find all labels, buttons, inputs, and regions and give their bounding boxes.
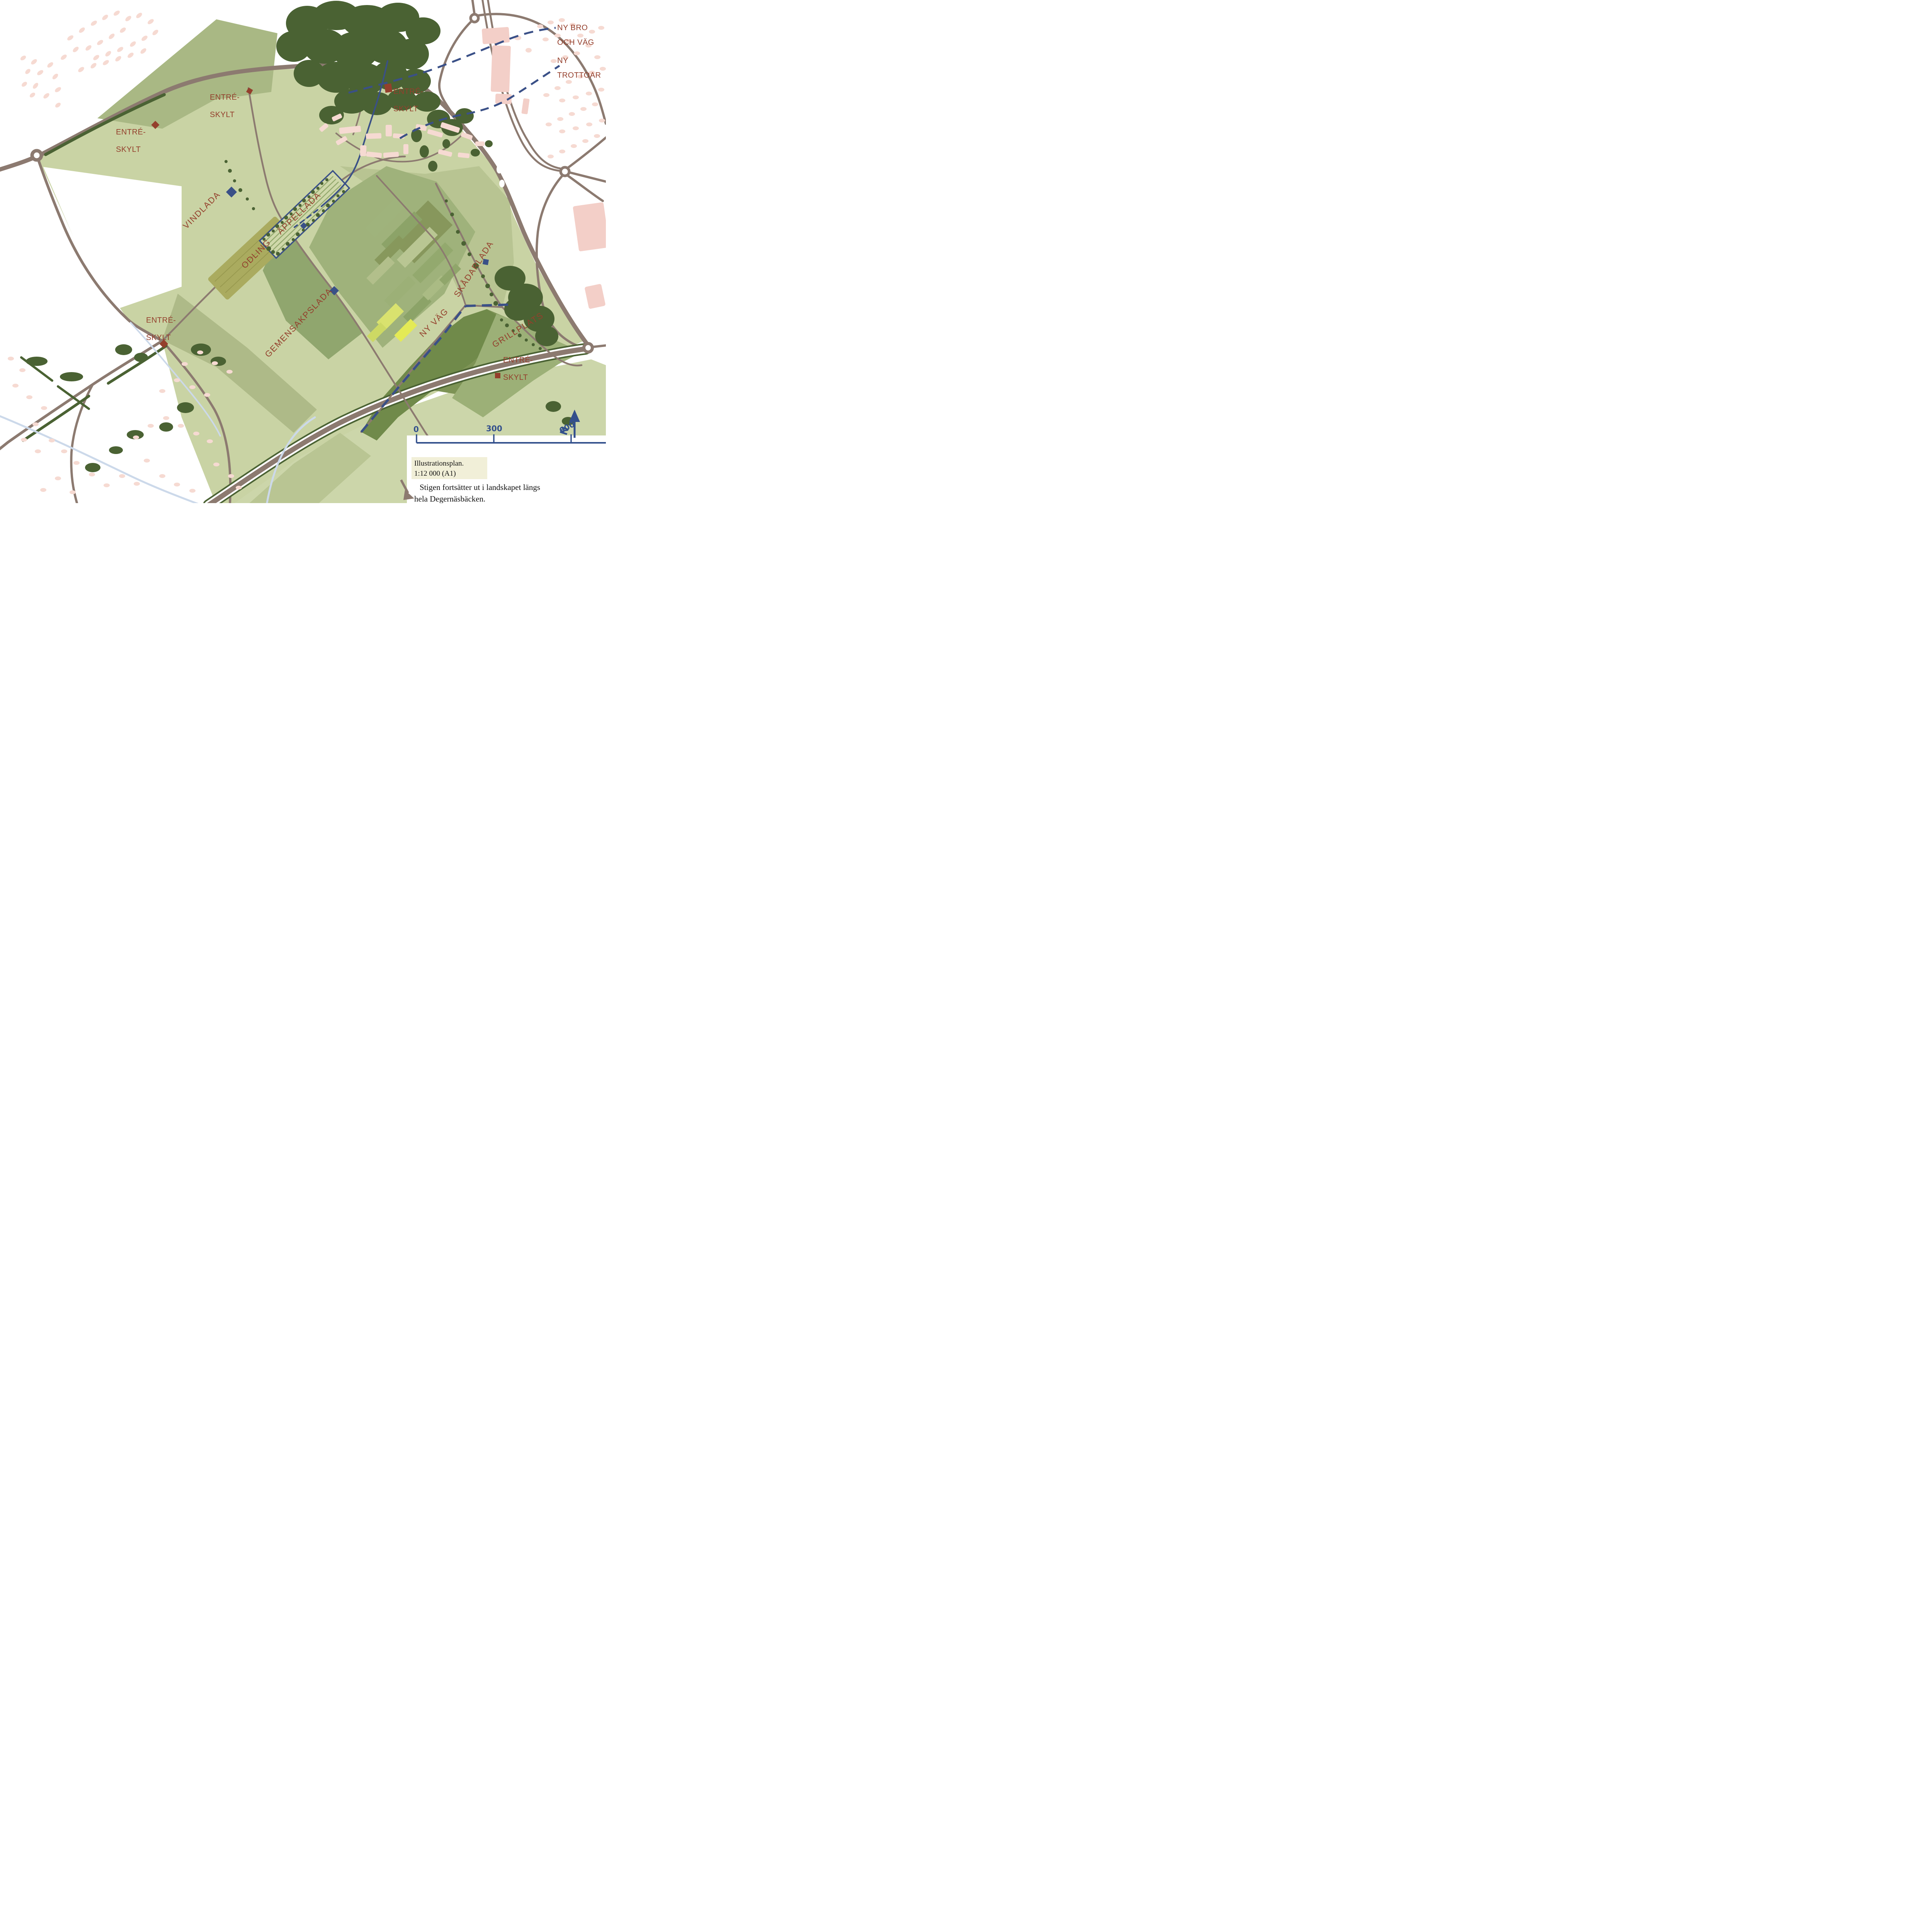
svg-text:ENTRÉ-: ENTRÉ-: [146, 316, 176, 325]
label-ny-trottoar-line1: NY: [557, 56, 568, 65]
scale-tick-300: 300: [486, 424, 502, 433]
illustration-plan-map: NY BRO OCH VÄG NY TROTTOAR ENTRÉ- SKYLT …: [0, 0, 606, 503]
label-ny-bro-line1: NY BRO: [557, 24, 588, 32]
scale-tick-0: 0: [413, 425, 419, 434]
svg-text:ENTRÉ-: ENTRÉ-: [116, 128, 146, 136]
svg-text:SKYLT: SKYLT: [503, 373, 528, 382]
svg-text:ENTRÉ-: ENTRÉ-: [210, 93, 240, 102]
svg-text:SKYLT: SKYLT: [146, 333, 171, 342]
entre-skylt-marker-southeast: [495, 373, 500, 378]
legend-title: Illustrationsplan.: [414, 459, 464, 468]
label-ny-bro-line2: OCH VÄG: [557, 38, 594, 47]
entre-skylt-marker-village: [384, 83, 393, 93]
label-ny-trottoar-line2: TROTTOAR: [557, 71, 601, 80]
svg-text:SKYLT: SKYLT: [116, 145, 141, 154]
legend-scale: 1:12 000 (A1): [414, 469, 456, 478]
svg-text:ENTRÉ-: ENTRÉ-: [393, 87, 423, 96]
svg-text:SKYLT: SKYLT: [393, 105, 418, 113]
note-line1: Stigen fortsätter ut i landskapet längs: [420, 483, 540, 492]
svg-text:ENTRÉ-: ENTRÉ-: [503, 355, 533, 364]
note-line2: hela Degernäsbäcken.: [414, 494, 485, 503]
svg-text:SKYLT: SKYLT: [210, 111, 235, 119]
